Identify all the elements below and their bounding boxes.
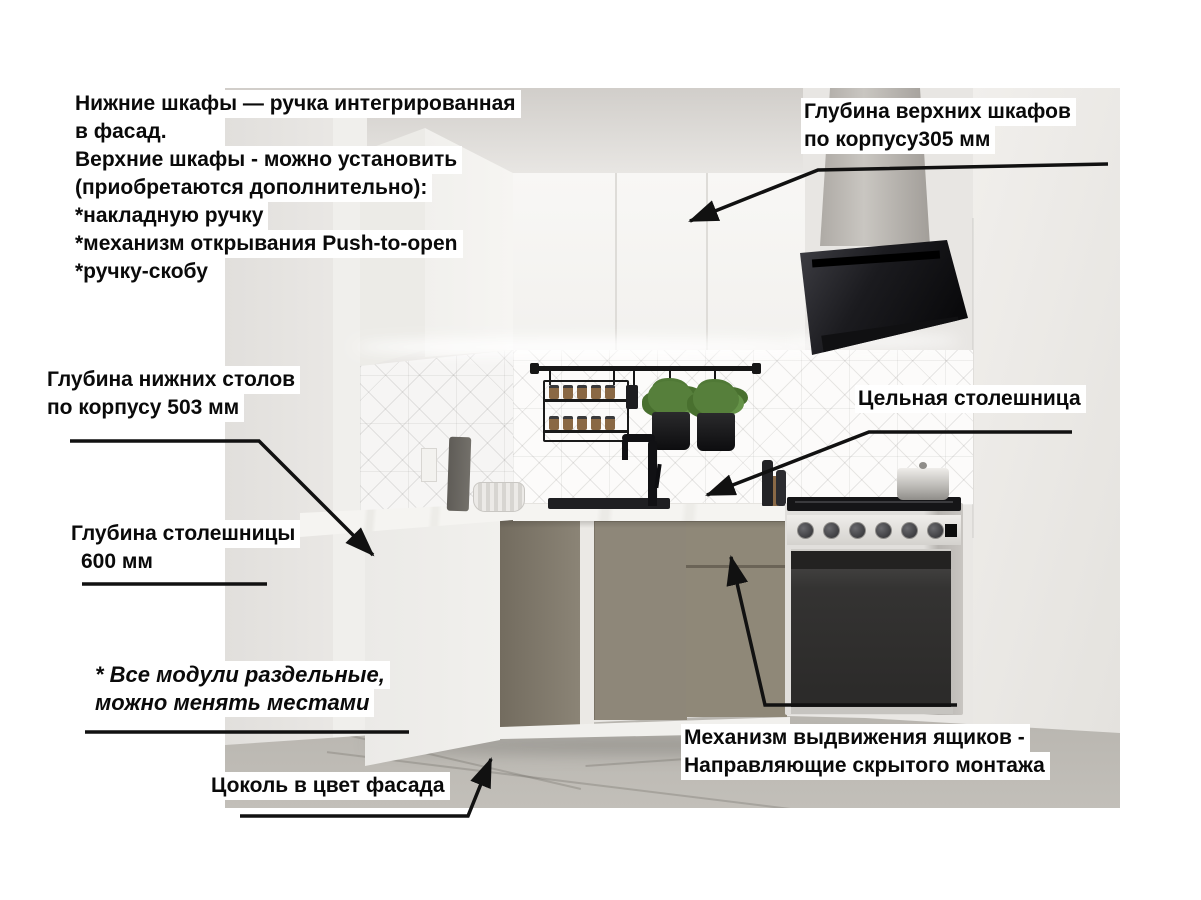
label-line: *накладную ручку bbox=[72, 202, 268, 230]
label-line: Глубина нижних столов bbox=[44, 366, 300, 394]
label-line: Верхние шкафы - можно установить bbox=[72, 146, 462, 174]
label-plinth: Цоколь в цвет фасада bbox=[208, 772, 450, 800]
label-line: * Все модули раздельные, bbox=[92, 661, 390, 689]
label-line: по корпусу305 мм bbox=[801, 126, 995, 154]
arrow-solid-countertop bbox=[707, 432, 1072, 495]
label-handles-note: Нижние шкафы — ручка интегрированная в ф… bbox=[72, 90, 521, 286]
label-solid-countertop: Цельная столешница bbox=[855, 385, 1086, 413]
label-line: Цоколь в цвет фасада bbox=[208, 772, 450, 800]
label-line: в фасад. bbox=[72, 118, 172, 146]
label-upper-cabinet-depth: Глубина верхних шкафов по корпусу305 мм bbox=[801, 98, 1076, 154]
label-line: по корпусу 503 мм bbox=[44, 394, 244, 422]
label-countertop-depth: Глубина столешницы 600 мм bbox=[68, 520, 300, 576]
label-line: Направляющие скрытого монтажа bbox=[681, 752, 1050, 780]
label-base-cabinet-depth: Глубина нижних столов по корпусу 503 мм bbox=[44, 366, 300, 422]
label-modules-note: * Все модули раздельные, можно менять ме… bbox=[92, 661, 390, 717]
label-line: Глубина столешницы bbox=[68, 520, 300, 548]
label-line: *механизм открывания Push-to-open bbox=[72, 230, 463, 258]
label-line: Глубина верхних шкафов bbox=[801, 98, 1076, 126]
arrow-upper-cabinet-depth bbox=[690, 164, 1108, 221]
label-line: *ручку-скобу bbox=[72, 258, 213, 286]
label-drawer-mechanism: Механизм выдвижения ящиков - Направляющи… bbox=[681, 724, 1050, 780]
arrow-drawer-mechanism bbox=[731, 557, 957, 705]
page: Нижние шкафы — ручка интегрированная в ф… bbox=[0, 0, 1201, 900]
label-line: (приобретаются дополнительно): bbox=[72, 174, 432, 202]
label-line: 600 мм bbox=[68, 548, 158, 576]
label-line: можно менять местами bbox=[92, 689, 374, 717]
label-line: Нижние шкафы — ручка интегрированная bbox=[72, 90, 521, 118]
label-line: Механизм выдвижения ящиков - bbox=[681, 724, 1030, 752]
label-line: Цельная столешница bbox=[855, 385, 1086, 413]
